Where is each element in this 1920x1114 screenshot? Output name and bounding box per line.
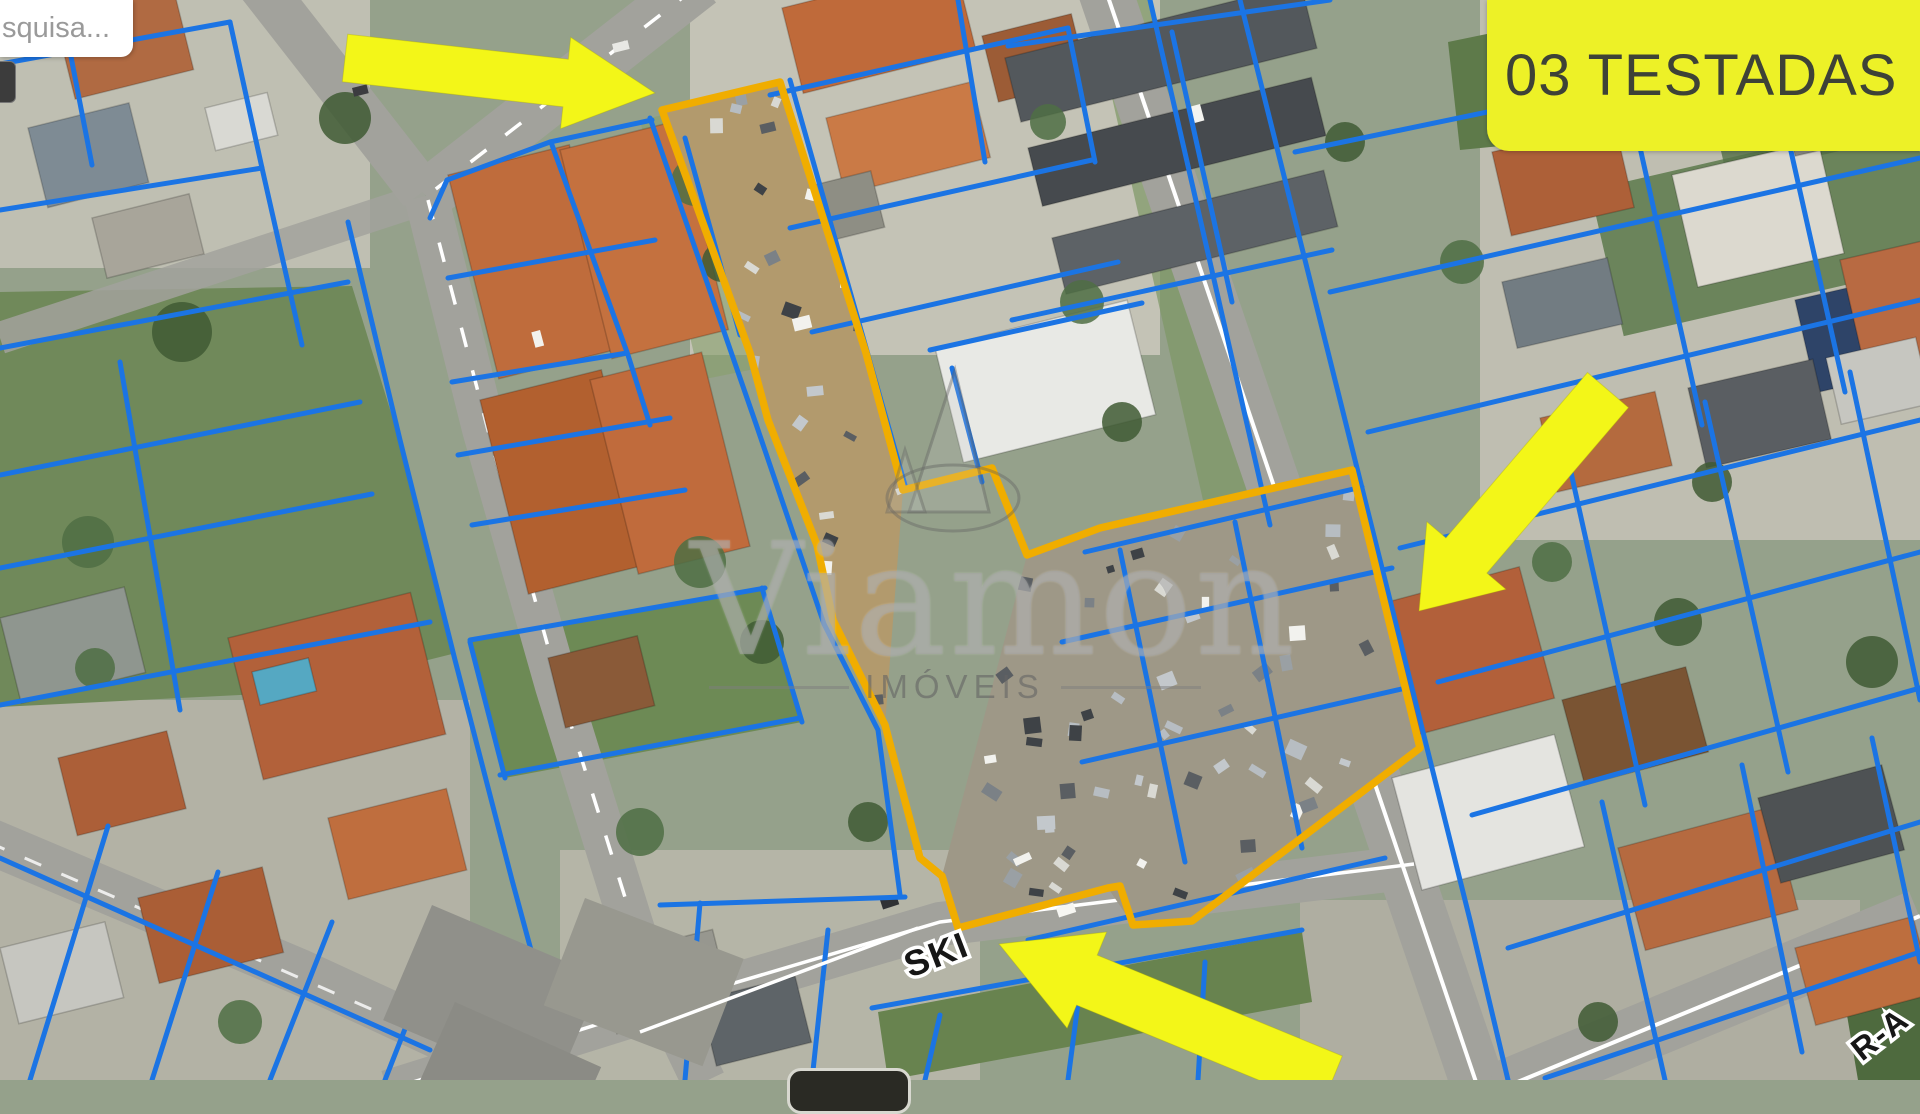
frontages-banner-label: 03 TESTADAS xyxy=(1487,42,1897,109)
search-input[interactable]: squisa... xyxy=(0,0,133,57)
search-input-text: squisa... xyxy=(0,12,110,45)
screenshot-root: { "search": { "visible_text": "squisa...… xyxy=(0,0,1920,1080)
satellite-map-canvas[interactable]: SKI R-A xyxy=(0,0,1920,1080)
side-panel-tab[interactable] xyxy=(0,61,16,103)
frontages-banner: 03 TESTADAS xyxy=(1487,0,1920,151)
bottom-chip xyxy=(787,1068,911,1114)
